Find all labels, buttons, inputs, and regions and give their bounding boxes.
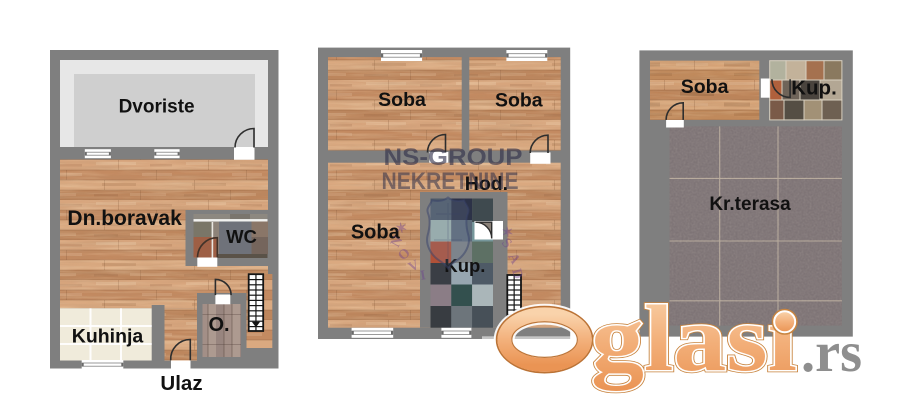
svg-text:NEKRETNINE: NEKRETNINE <box>382 168 519 195</box>
svg-text:WC: WC <box>226 226 257 247</box>
svg-text:Soba: Soba <box>495 90 543 112</box>
svg-text:Soba: Soba <box>378 89 426 111</box>
svg-text:Kuhinja: Kuhinja <box>72 325 144 347</box>
svg-text:Kup.: Kup. <box>791 77 837 100</box>
svg-text:glası: glası <box>591 287 797 391</box>
svg-text:Dvoriste: Dvoriste <box>119 96 195 117</box>
svg-text:Dn.boravak: Dn.boravak <box>67 207 182 230</box>
svg-text:Kr.terasa: Kr.terasa <box>709 194 791 215</box>
svg-text:Soba: Soba <box>681 76 729 98</box>
svg-text:O.: O. <box>208 314 229 336</box>
svg-text:.rs: .rs <box>801 321 862 384</box>
svg-text:Ulaz: Ulaz <box>160 372 202 395</box>
